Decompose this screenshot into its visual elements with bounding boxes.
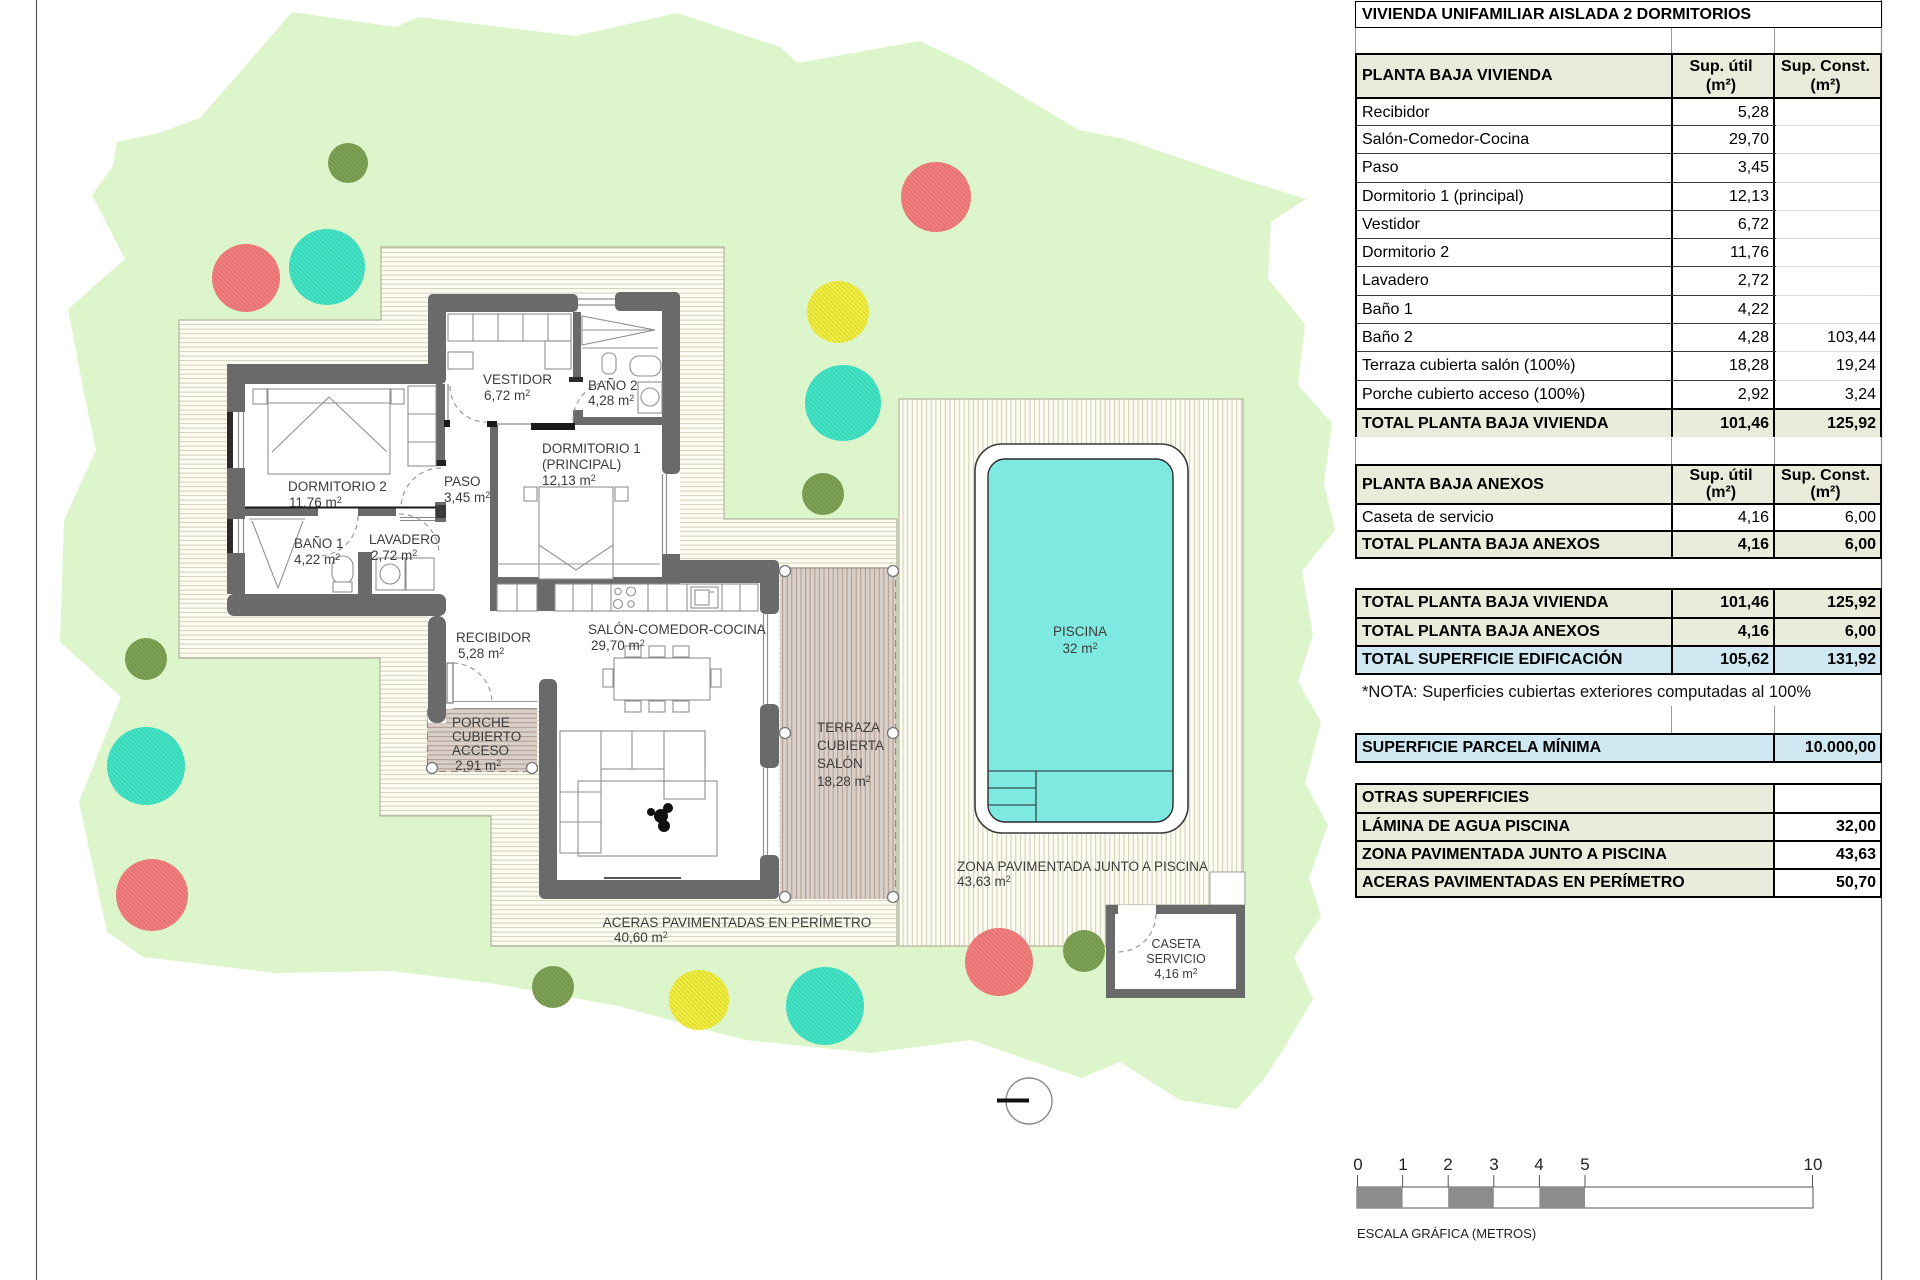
- svg-text:ZONA PAVIMENTADA JUNTO A PISCI: ZONA PAVIMENTADA JUNTO A PISCINA: [957, 859, 1208, 874]
- svg-text:18,28 m2: 18,28 m2: [817, 774, 871, 789]
- svg-text:6,72 m2: 6,72 m2: [484, 388, 530, 403]
- svg-text:32 m2: 32 m2: [1062, 641, 1097, 656]
- svg-text:SALÓN: SALÓN: [817, 756, 863, 771]
- svg-text:PISCINA: PISCINA: [1053, 624, 1107, 639]
- svg-text:SALÓN-COMEDOR-COCINA: SALÓN-COMEDOR-COCINA: [588, 622, 766, 637]
- svg-text:4,28 m2: 4,28 m2: [588, 393, 634, 408]
- svg-text:2: 2: [1443, 1155, 1452, 1174]
- svg-text:VESTIDOR: VESTIDOR: [483, 372, 552, 387]
- svg-text:PORCHE: PORCHE: [452, 715, 510, 730]
- svg-text:12,13 m2: 12,13 m2: [542, 473, 596, 488]
- svg-text:29,70 m2: 29,70 m2: [591, 638, 645, 653]
- svg-text:ACCESO: ACCESO: [452, 743, 509, 758]
- svg-text:PASO: PASO: [444, 474, 481, 489]
- svg-text:BAÑO 2: BAÑO 2: [588, 378, 638, 393]
- svg-text:0: 0: [1353, 1155, 1362, 1174]
- svg-text:10: 10: [1804, 1155, 1823, 1174]
- svg-text:DORMITORIO 2: DORMITORIO 2: [288, 479, 387, 494]
- svg-text:RECIBIDOR: RECIBIDOR: [456, 630, 531, 645]
- svg-text:TERRAZA: TERRAZA: [817, 720, 880, 735]
- svg-text:3: 3: [1489, 1155, 1498, 1174]
- svg-text:4: 4: [1534, 1155, 1543, 1174]
- svg-text:11,76 m2: 11,76 m2: [289, 495, 342, 510]
- svg-text:ACERAS PAVIMENTADAS EN PERÍMET: ACERAS PAVIMENTADAS EN PERÍMETRO: [603, 915, 872, 930]
- svg-text:40,60 m2: 40,60 m2: [614, 930, 668, 945]
- svg-text:DORMITORIO 1: DORMITORIO 1: [542, 441, 641, 456]
- svg-text:2,91 m2: 2,91 m2: [455, 758, 501, 773]
- svg-text:43,63 m2: 43,63 m2: [957, 874, 1011, 889]
- svg-text:CUBIERTO: CUBIERTO: [452, 729, 521, 744]
- svg-text:5: 5: [1580, 1155, 1589, 1174]
- svg-text:CUBIERTA: CUBIERTA: [817, 738, 884, 753]
- svg-text:5,28 m2: 5,28 m2: [458, 646, 504, 661]
- svg-text:LAVADERO: LAVADERO: [369, 532, 441, 547]
- svg-text:CASETA: CASETA: [1151, 937, 1201, 951]
- svg-text:2,72 m2: 2,72 m2: [371, 548, 417, 563]
- svg-text:4,16 m2: 4,16 m2: [1155, 966, 1198, 981]
- svg-text:SERVICIO: SERVICIO: [1146, 952, 1206, 966]
- svg-text:1: 1: [1398, 1155, 1407, 1174]
- svg-text:(PRINCIPAL): (PRINCIPAL): [542, 457, 621, 472]
- svg-text:ESCALA GRÁFICA (METROS): ESCALA GRÁFICA (METROS): [1357, 1226, 1536, 1241]
- svg-text:BAÑO 1: BAÑO 1: [294, 536, 344, 551]
- svg-text:4,22 m2: 4,22 m2: [294, 552, 340, 567]
- svg-text:3,45 m2: 3,45 m2: [444, 490, 490, 505]
